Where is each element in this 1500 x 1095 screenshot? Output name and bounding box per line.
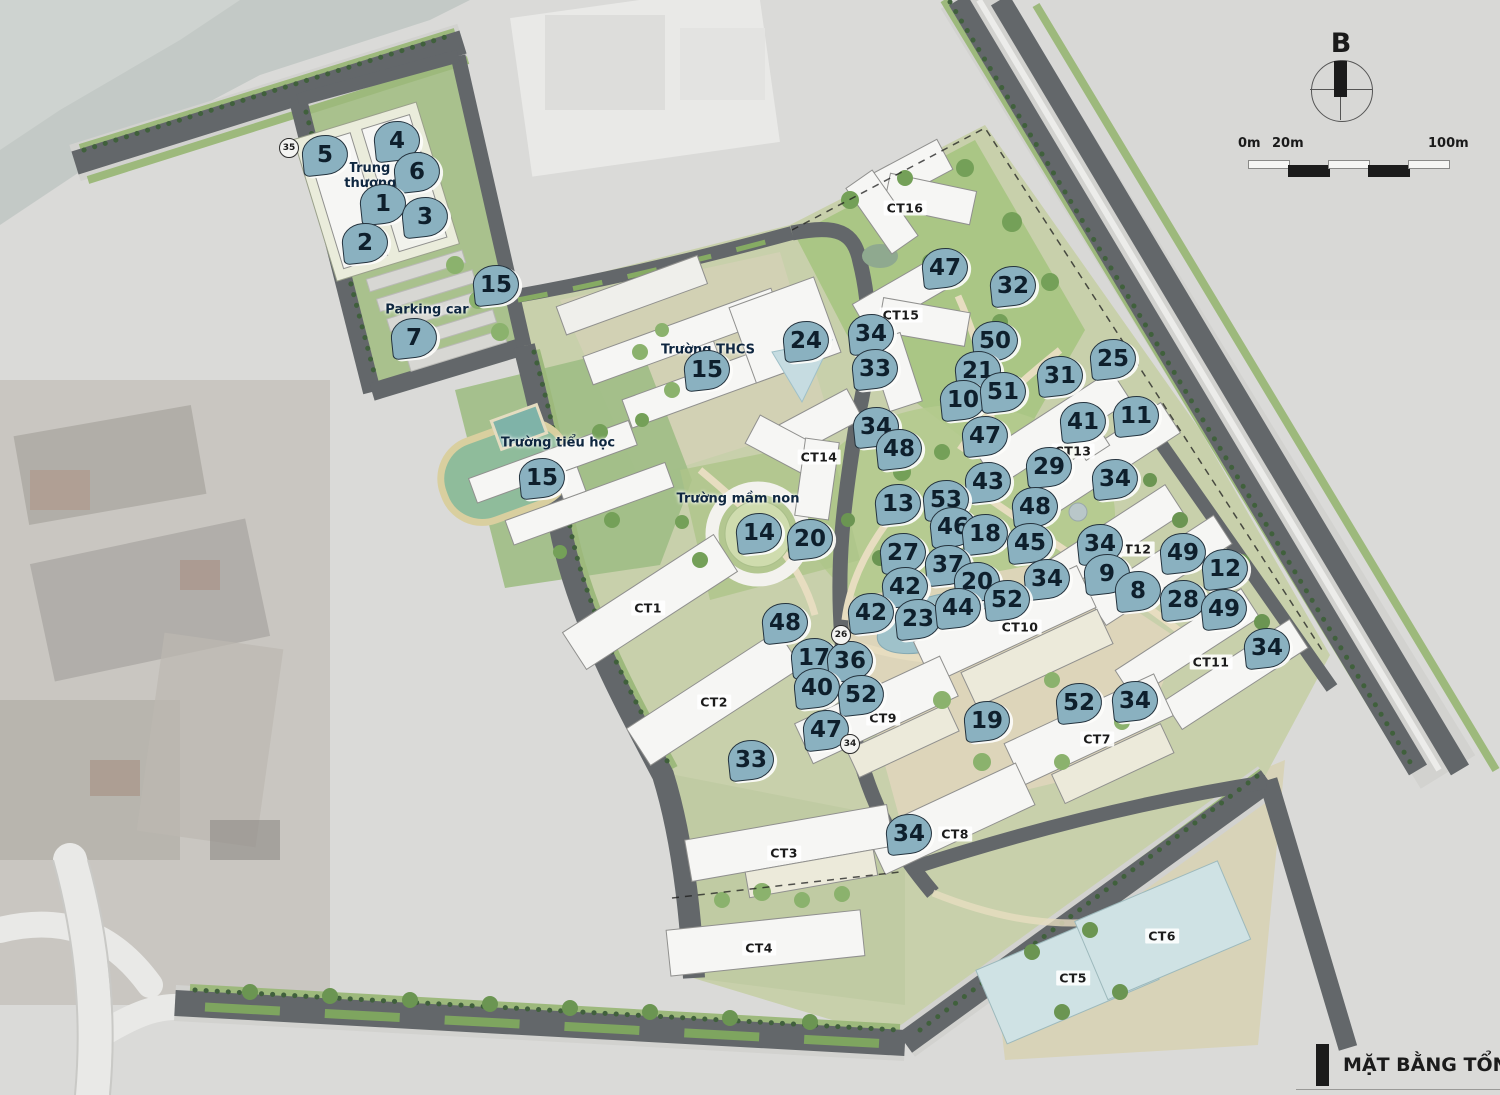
scale-segment [1408,160,1450,169]
title-bar-icon [1316,1044,1329,1086]
title-block: MẶT BẰNG TỔNG THỂ [1296,1040,1500,1095]
plan-title: MẶT BẰNG TỔNG THỂ [1343,1054,1500,1076]
scale-segment [1248,160,1290,169]
scale-label-20m: 20m [1272,136,1304,151]
scale-segment [1328,160,1370,169]
scale-segment [1288,165,1330,177]
scale-segment [1368,165,1410,177]
scale-label-100m: 100m [1428,136,1469,151]
compass-north-label: B [1331,28,1352,59]
scale-label-0m: 0m [1238,136,1261,151]
north-compass: B [1311,28,1371,124]
title-rule [1296,1089,1500,1090]
compass-north-needle-icon [1334,61,1347,97]
site-plan-image: Trung tâm thương mạiParking carTrường TH… [0,0,1500,1095]
scale-bar: 0m 20m 100m [1224,136,1474,180]
